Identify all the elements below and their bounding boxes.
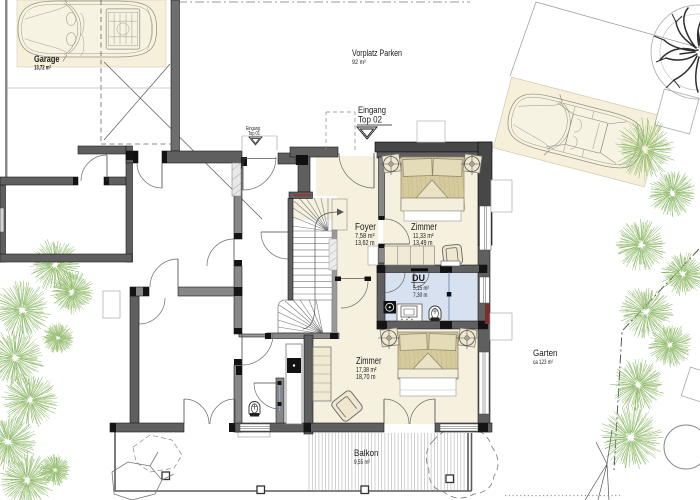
svg-text:Top 01: Top 01 — [248, 131, 260, 137]
svg-text:Garten: Garten — [533, 348, 558, 359]
svg-text:Zimmer: Zimmer — [411, 222, 438, 233]
svg-text:7,30 m: 7,30 m — [413, 292, 428, 299]
svg-text:9,55 m²: 9,55 m² — [354, 459, 371, 466]
svg-text:Balkon: Balkon — [354, 448, 379, 459]
svg-text:DU: DU — [412, 273, 425, 283]
svg-text:Foyer: Foyer — [355, 222, 377, 233]
svg-text:18,70 m: 18,70 m — [356, 374, 376, 381]
svg-text:13,49 m: 13,49 m — [413, 240, 433, 247]
svg-text:11,33 m²: 11,33 m² — [413, 233, 434, 240]
svg-text:Garage: Garage — [34, 54, 60, 65]
svg-text:17,38 m²: 17,38 m² — [356, 367, 377, 374]
svg-text:13,62 m: 13,62 m — [355, 240, 375, 247]
svg-text:ca 123 m²: ca 123 m² — [533, 359, 554, 366]
svg-text:92 m²: 92 m² — [352, 59, 367, 66]
svg-text:13,72 m²: 13,72 m² — [34, 65, 51, 72]
svg-text:5,15 m²: 5,15 m² — [413, 285, 430, 292]
svg-text:Zimmer: Zimmer — [356, 356, 382, 367]
svg-text:Vorplatz Parken: Vorplatz Parken — [352, 48, 402, 59]
svg-text:Top 02: Top 02 — [358, 115, 382, 126]
svg-text:7,58 m²: 7,58 m² — [355, 233, 375, 240]
